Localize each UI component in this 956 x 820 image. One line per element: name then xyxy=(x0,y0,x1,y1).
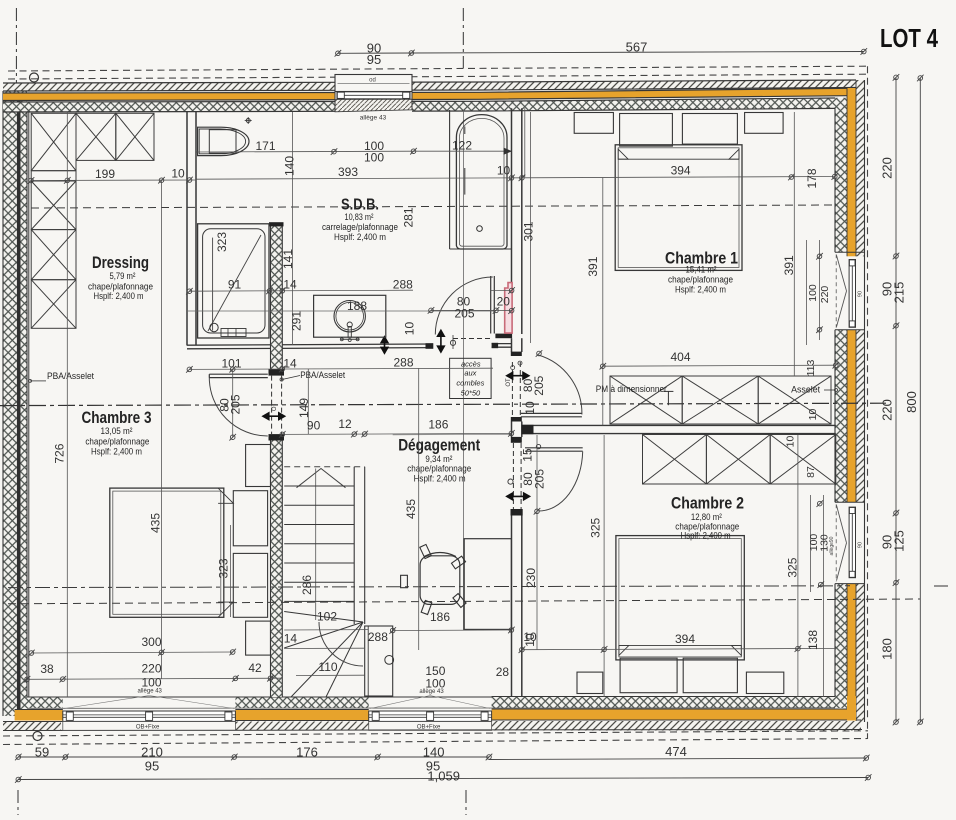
svg-text:OB+Fixe: OB+Fixe xyxy=(417,725,441,731)
svg-text:140: 140 xyxy=(283,156,297,176)
svg-text:Hsplf: 2,400 m: Hsplf: 2,400 m xyxy=(414,474,466,484)
svg-text:Hsplf: 2,400 m: Hsplf: 2,400 m xyxy=(94,291,144,301)
svg-text:325: 325 xyxy=(589,517,603,537)
svg-text:38: 38 xyxy=(40,662,54,676)
svg-text:59: 59 xyxy=(35,745,49,760)
svg-text:aux: aux xyxy=(464,369,476,378)
svg-text:LOT 4: LOT 4 xyxy=(880,23,938,53)
svg-text:Hsplf: 2,400 m: Hsplf: 2,400 m xyxy=(334,232,386,242)
svg-text:474: 474 xyxy=(665,744,687,759)
svg-text:allège 43: allège 43 xyxy=(138,688,163,694)
svg-text:138: 138 xyxy=(806,630,820,650)
svg-text:176: 176 xyxy=(296,745,318,760)
svg-text:220: 220 xyxy=(819,286,831,304)
svg-text:325: 325 xyxy=(786,557,800,577)
svg-text:180: 180 xyxy=(880,638,895,660)
svg-text:230: 230 xyxy=(524,568,538,588)
svg-text:567: 567 xyxy=(626,39,648,54)
svg-text:20: 20 xyxy=(497,295,511,309)
svg-text:13,05 m²: 13,05 m² xyxy=(101,426,133,437)
svg-text:Chambre 3: Chambre 3 xyxy=(82,409,152,427)
svg-text:1,059: 1,059 xyxy=(427,769,460,784)
svg-text:394: 394 xyxy=(675,632,695,646)
svg-text:10: 10 xyxy=(807,409,819,421)
svg-text:14: 14 xyxy=(283,277,297,291)
svg-text:220: 220 xyxy=(880,157,895,179)
svg-text:323: 323 xyxy=(215,232,229,252)
svg-text:178: 178 xyxy=(805,168,819,188)
svg-text:199: 199 xyxy=(95,167,115,181)
svg-text:5,79 m²: 5,79 m² xyxy=(110,271,136,282)
svg-text:87: 87 xyxy=(805,466,817,478)
svg-text:PM à dimensionner: PM à dimensionner xyxy=(596,384,667,394)
svg-text:chape/plafonnage: chape/plafonnage xyxy=(407,464,471,474)
svg-text:10: 10 xyxy=(402,322,416,336)
svg-text:323: 323 xyxy=(217,558,231,578)
svg-text:allège 43: allège 43 xyxy=(360,115,387,122)
svg-text:288: 288 xyxy=(393,277,413,291)
svg-text:50*50: 50*50 xyxy=(461,389,481,398)
svg-text:90: 90 xyxy=(307,419,321,433)
svg-text:Hsplf: 2,400 m: Hsplf: 2,400 m xyxy=(675,285,726,295)
svg-text:122: 122 xyxy=(452,139,472,153)
svg-text:391: 391 xyxy=(782,255,796,275)
svg-text:10: 10 xyxy=(523,630,537,644)
svg-text:10: 10 xyxy=(497,164,511,178)
svg-text:combles: combles xyxy=(456,379,484,388)
svg-text:14: 14 xyxy=(284,632,298,646)
svg-text:300: 300 xyxy=(141,635,161,649)
svg-text:102: 102 xyxy=(317,610,337,624)
svg-text:Hsplf: 2,400 m: Hsplf: 2,400 m xyxy=(681,531,731,541)
svg-text:171: 171 xyxy=(255,139,275,153)
svg-text:301: 301 xyxy=(522,221,536,241)
svg-text:394: 394 xyxy=(671,164,691,178)
svg-text:100: 100 xyxy=(364,151,384,165)
svg-text:391: 391 xyxy=(586,256,600,276)
svg-text:chape/plafonnage: chape/plafonnage xyxy=(85,437,149,447)
svg-text:404: 404 xyxy=(670,350,690,364)
svg-text:S.D.B.: S.D.B. xyxy=(341,197,379,214)
svg-text:205: 205 xyxy=(532,375,546,395)
svg-text:PBA/Asselet: PBA/Asselet xyxy=(300,370,345,380)
svg-text:215: 215 xyxy=(892,282,907,304)
svg-text:10: 10 xyxy=(785,436,797,448)
svg-text:10: 10 xyxy=(523,401,537,415)
svg-text:186: 186 xyxy=(430,610,450,624)
svg-text:od: od xyxy=(369,78,376,84)
svg-text:Hsplf: 2,400 m: Hsplf: 2,400 m xyxy=(91,447,142,457)
svg-text:205: 205 xyxy=(229,394,243,414)
svg-text:14: 14 xyxy=(283,356,297,370)
svg-text:110: 110 xyxy=(318,660,337,674)
svg-text:91: 91 xyxy=(228,277,242,291)
svg-text:281: 281 xyxy=(402,207,416,227)
svg-text:220: 220 xyxy=(880,399,895,421)
svg-text:140: 140 xyxy=(423,745,445,760)
svg-text:100: 100 xyxy=(807,284,819,302)
svg-text:141: 141 xyxy=(281,249,295,269)
svg-text:220: 220 xyxy=(141,662,161,676)
svg-text:10: 10 xyxy=(171,167,185,181)
svg-text:435: 435 xyxy=(404,499,418,519)
svg-text:113: 113 xyxy=(805,359,817,376)
svg-text:205: 205 xyxy=(533,469,547,489)
svg-text:carrelage/plafonnage: carrelage/plafonnage xyxy=(322,222,398,232)
svg-text:101: 101 xyxy=(221,356,241,370)
svg-text:accès: accès xyxy=(461,360,481,369)
svg-text:Dégagement: Dégagement xyxy=(398,437,480,455)
svg-text:allège 43: allège 43 xyxy=(419,689,444,695)
svg-text:393: 393 xyxy=(338,165,358,179)
svg-text:12: 12 xyxy=(338,417,352,431)
svg-text:28: 28 xyxy=(496,665,510,679)
svg-text:chape/plafonnage: chape/plafonnage xyxy=(88,282,153,292)
svg-text:chape/plafonnage: chape/plafonnage xyxy=(668,275,733,285)
svg-text:OT: OT xyxy=(506,378,512,387)
svg-text:95: 95 xyxy=(367,52,381,67)
svg-text:800: 800 xyxy=(904,391,919,413)
svg-text:OB+Fixe: OB+Fixe xyxy=(136,725,160,731)
svg-text:435: 435 xyxy=(149,513,163,533)
svg-text:286: 286 xyxy=(300,575,314,595)
svg-text:90: 90 xyxy=(858,291,864,297)
svg-text:149: 149 xyxy=(297,398,311,418)
svg-text:90: 90 xyxy=(858,542,864,548)
svg-text:726: 726 xyxy=(53,443,67,463)
svg-text:OT: OT xyxy=(272,403,278,412)
svg-text:291: 291 xyxy=(290,311,304,331)
svg-text:95: 95 xyxy=(145,759,159,774)
svg-text:42: 42 xyxy=(248,661,262,675)
svg-text:205: 205 xyxy=(454,307,474,321)
svg-text:Dressing: Dressing xyxy=(92,254,149,272)
svg-text:186: 186 xyxy=(428,418,448,432)
svg-text:288: 288 xyxy=(393,356,413,370)
svg-text:PBA/Asselet: PBA/Asselet xyxy=(47,371,94,381)
svg-text:210: 210 xyxy=(141,745,163,760)
svg-text:Chambre 2: Chambre 2 xyxy=(671,495,744,513)
svg-text:288: 288 xyxy=(368,630,388,644)
svg-text:allège90: allège90 xyxy=(829,536,835,555)
svg-text:125: 125 xyxy=(892,530,907,552)
svg-text:Asselet: Asselet xyxy=(791,385,820,395)
svg-text:15: 15 xyxy=(521,448,535,462)
